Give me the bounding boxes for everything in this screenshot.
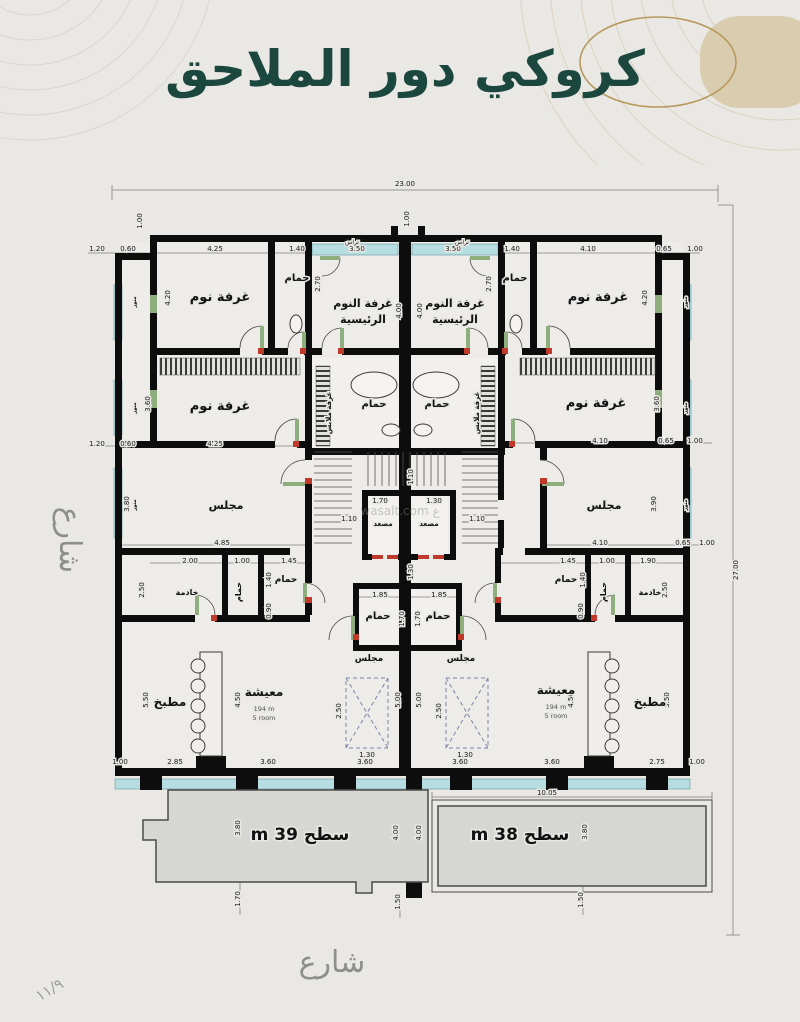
dim-1.40: 1.40 bbox=[289, 245, 305, 253]
dim-4.10: 4.10 bbox=[580, 245, 596, 253]
label-roof-left: سطح 39 m bbox=[251, 825, 350, 845]
dim-1.00: 1.00 bbox=[687, 437, 703, 445]
sink-left bbox=[382, 424, 400, 436]
label-master-bedroom-right: غرفة النوم bbox=[425, 297, 484, 310]
sink-right bbox=[414, 424, 432, 436]
dim-3.60: 3.60 bbox=[357, 758, 373, 766]
label-lightwell-left-3: منور bbox=[132, 499, 138, 511]
label-living-left: 194 m bbox=[254, 705, 275, 713]
label-master-bedroom-right: الرئيسية bbox=[432, 313, 478, 326]
label-bath-center-right: حمام bbox=[426, 611, 451, 622]
label-bath-d2-left: حمام bbox=[275, 575, 298, 585]
dim-1.20: 1.20 bbox=[89, 440, 105, 448]
dim-4.10: 4.10 bbox=[592, 539, 608, 547]
dim-2.70: 2.70 bbox=[485, 276, 493, 292]
dim-1.10: 1.10 bbox=[341, 515, 357, 523]
dim-10.05: 10.05 bbox=[537, 789, 557, 797]
dim-0.60: 0.60 bbox=[120, 440, 136, 448]
dim-1.00: 1.00 bbox=[599, 557, 615, 565]
label-majlis-small-right: مجلس bbox=[447, 654, 475, 664]
dim-1.40: 1.40 bbox=[579, 572, 587, 588]
wc-top-left bbox=[290, 315, 302, 333]
floor-plan-page: كروكي دور الملاحق bbox=[0, 0, 800, 1022]
label-bath-d2-right: حمام bbox=[599, 582, 608, 602]
dim-1.50: 1.50 bbox=[577, 892, 585, 908]
dim-3.60: 3.60 bbox=[452, 758, 468, 766]
dim-1.00: 1.00 bbox=[687, 245, 703, 253]
dim-0.65: 0.65 bbox=[656, 245, 672, 253]
dim-1.30: 1.30 bbox=[407, 564, 415, 580]
dim-1.45: 1.45 bbox=[281, 557, 297, 565]
dim-1.00: 1.00 bbox=[234, 557, 250, 565]
bathtub-left bbox=[351, 372, 397, 398]
label-majlis-small-left: مجلس bbox=[355, 654, 383, 664]
label-bedroom-1-right: غرفة نوم bbox=[568, 290, 628, 305]
dim-4.85: 4.85 bbox=[214, 539, 230, 547]
label-lightwell-left-2: منور bbox=[132, 402, 138, 414]
dim-3.50: 3.50 bbox=[445, 245, 461, 253]
label-majlis-left: مجلس bbox=[209, 499, 244, 512]
dim-0.90: 0.90 bbox=[265, 603, 273, 619]
dim-27.00: 27.00 bbox=[732, 560, 740, 580]
dim-1.70: 1.70 bbox=[234, 891, 242, 907]
dim-1.00: 1.00 bbox=[403, 211, 411, 227]
roof-terraces bbox=[143, 790, 712, 893]
label-living-left: 5 room bbox=[252, 714, 275, 722]
label-master-bedroom-left: غرفة النوم bbox=[333, 297, 392, 310]
dim-2.00: 2.00 bbox=[182, 557, 198, 565]
label-balcony-left: تراس bbox=[345, 239, 359, 246]
dim-1.40: 1.40 bbox=[504, 245, 520, 253]
roof-terrace-right bbox=[438, 806, 706, 886]
dim-2.50: 2.50 bbox=[335, 703, 343, 719]
title-accent-blob bbox=[700, 16, 800, 108]
dim-4.25: 4.25 bbox=[207, 440, 223, 448]
dim-4.20: 4.20 bbox=[641, 290, 649, 306]
label-bath-top-left: حمام bbox=[285, 273, 310, 284]
dim-0.65: 0.65 bbox=[658, 437, 674, 445]
dim-4.00: 4.00 bbox=[416, 303, 424, 319]
dim-0.65: 0.65 bbox=[675, 539, 691, 547]
label-majlis-right: مجلس bbox=[587, 499, 622, 512]
dim-1.45: 1.45 bbox=[560, 557, 576, 565]
label-bath-center-left: حمام bbox=[366, 611, 391, 622]
dim-1.20: 1.20 bbox=[89, 245, 105, 253]
dim-1.90: 1.90 bbox=[640, 557, 656, 565]
dim-1.70: 1.70 bbox=[398, 611, 406, 627]
dim-1.85: 1.85 bbox=[372, 591, 388, 599]
dim-4.25: 4.25 bbox=[207, 245, 223, 253]
label-balcony-right: تراس bbox=[455, 239, 469, 246]
dim-4.00: 4.00 bbox=[395, 303, 403, 319]
dim-1.85: 1.85 bbox=[431, 591, 447, 599]
dim-2.75: 2.75 bbox=[649, 758, 665, 766]
dim-4.50: 4.50 bbox=[234, 692, 242, 708]
label-elevator-left: مصعد bbox=[373, 520, 392, 528]
dim-3.60: 3.60 bbox=[260, 758, 276, 766]
dim-3.50: 3.50 bbox=[349, 245, 365, 253]
dim-3.60: 3.60 bbox=[544, 758, 560, 766]
label-bedroom-2-left: غرفة نوم bbox=[190, 399, 250, 414]
dim-2.70: 2.70 bbox=[314, 276, 322, 292]
dim-5.00: 5.00 bbox=[394, 692, 402, 708]
dim-2.50: 2.50 bbox=[661, 582, 669, 598]
label-living-right: معيشة bbox=[537, 683, 576, 697]
decorative-corner-arcs bbox=[0, 0, 800, 240]
dim-4.10: 4.10 bbox=[592, 437, 608, 445]
dim-0.60: 0.60 bbox=[120, 245, 136, 253]
dim-4.00: 4.00 bbox=[415, 825, 423, 841]
dim-1.10: 1.10 bbox=[407, 469, 415, 485]
dim-3.80: 3.80 bbox=[581, 824, 589, 840]
label-living-left: معيشة bbox=[245, 685, 284, 699]
watermark: wasalt.com ع bbox=[360, 504, 440, 518]
label-bath-d1-left: حمام bbox=[234, 582, 243, 602]
dim-2.85: 2.85 bbox=[167, 758, 183, 766]
label-dressing-left: غرفة ملابس bbox=[325, 391, 333, 434]
wc-top-right bbox=[510, 315, 522, 333]
dim-1.70: 1.70 bbox=[414, 611, 422, 627]
street-label-bottom: شارع bbox=[299, 945, 366, 980]
label-bath-d1-right: حمام bbox=[555, 575, 578, 585]
dim-3.80: 3.80 bbox=[234, 820, 242, 836]
label-living-right: 194 m bbox=[546, 703, 567, 711]
label-bath-top-right: حمام bbox=[503, 273, 528, 284]
label-bath-mid-right: حمام bbox=[425, 399, 450, 410]
label-kitchen-left: مطبخ bbox=[154, 695, 187, 709]
label-bedroom-2-right: غرفة نوم bbox=[566, 396, 626, 411]
dim-1.50: 1.50 bbox=[394, 894, 402, 910]
dim-1.00: 1.00 bbox=[689, 758, 705, 766]
label-kitchen-right: مطبخ bbox=[634, 695, 667, 709]
street-label-left: شارع bbox=[52, 507, 87, 574]
label-bath-mid-left: حمام bbox=[362, 399, 387, 410]
dim-4.20: 4.20 bbox=[164, 290, 172, 306]
label-master-bedroom-left: الرئيسية bbox=[340, 313, 386, 326]
dim-1.00: 1.00 bbox=[136, 213, 144, 229]
dim-23.00: 23.00 bbox=[395, 180, 415, 188]
label-lightwell-right-1: منور bbox=[683, 296, 689, 308]
label-lightwell-left-1: منور bbox=[132, 296, 138, 308]
dim-1.10: 1.10 bbox=[469, 515, 485, 523]
dim-1.00: 1.00 bbox=[112, 758, 128, 766]
dim-3.80: 3.80 bbox=[123, 496, 131, 512]
label-roof-right: سطح 38 m bbox=[471, 825, 570, 845]
dim-1.40: 1.40 bbox=[265, 572, 273, 588]
label-lightwell-right-3: منور bbox=[683, 499, 689, 511]
label-dressing-right: غرفة ملابس bbox=[473, 391, 481, 434]
dim-5.00: 5.00 bbox=[415, 692, 423, 708]
page-number: ١١/٩ bbox=[32, 975, 66, 1005]
label-bedroom-1-left: غرفة نوم bbox=[190, 290, 250, 305]
label-maid-right: خادمة bbox=[639, 588, 662, 597]
dim-2.50: 2.50 bbox=[435, 703, 443, 719]
floor-plan-canvas: كروكي دور الملاحق bbox=[0, 0, 800, 1022]
label-living-right: 5 room bbox=[544, 712, 567, 720]
dim-4.00: 4.00 bbox=[392, 825, 400, 841]
label-lightwell-right-2: منور bbox=[683, 402, 689, 414]
dim-3.60: 3.60 bbox=[144, 396, 152, 412]
dim-5.50: 5.50 bbox=[142, 692, 150, 708]
dim-2.50: 2.50 bbox=[138, 582, 146, 598]
dim-0.90: 0.90 bbox=[577, 603, 585, 619]
label-elevator-right: مصعد bbox=[419, 520, 438, 528]
dim-3.60: 3.60 bbox=[653, 396, 661, 412]
dim-3.90: 3.90 bbox=[650, 496, 658, 512]
label-maid-left: خادمة bbox=[176, 588, 199, 597]
dim-1.00: 1.00 bbox=[699, 539, 715, 547]
bathtub-right bbox=[413, 372, 459, 398]
page-title: كروكي دور الملاحق bbox=[165, 40, 646, 99]
